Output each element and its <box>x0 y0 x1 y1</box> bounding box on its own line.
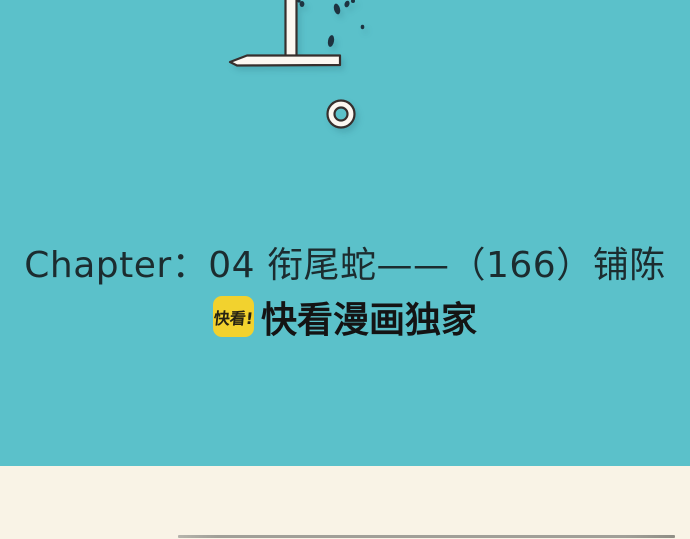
ink-splatter <box>297 0 364 47</box>
divider-line <box>178 535 675 538</box>
brush-artwork <box>0 0 420 150</box>
publisher-label: 快看漫画独家 <box>261 291 477 343</box>
ring-shape <box>328 101 355 128</box>
brush-stroke-horizontal <box>230 56 340 66</box>
brush-stroke-vertical <box>286 0 297 58</box>
kuaikan-logo-text: 快看! <box>213 305 255 329</box>
publisher-badge: 快看! 快看漫画独家 <box>0 295 690 338</box>
panel-cream <box>0 466 690 539</box>
chapter-title: Chapter：04 衔尾蛇——（166）铺陈 <box>0 236 690 288</box>
kuaikan-logo-icon: 快看! <box>213 296 254 337</box>
comic-page: Chapter：04 衔尾蛇——（166）铺陈 快看! 快看漫画独家 <box>0 0 690 539</box>
